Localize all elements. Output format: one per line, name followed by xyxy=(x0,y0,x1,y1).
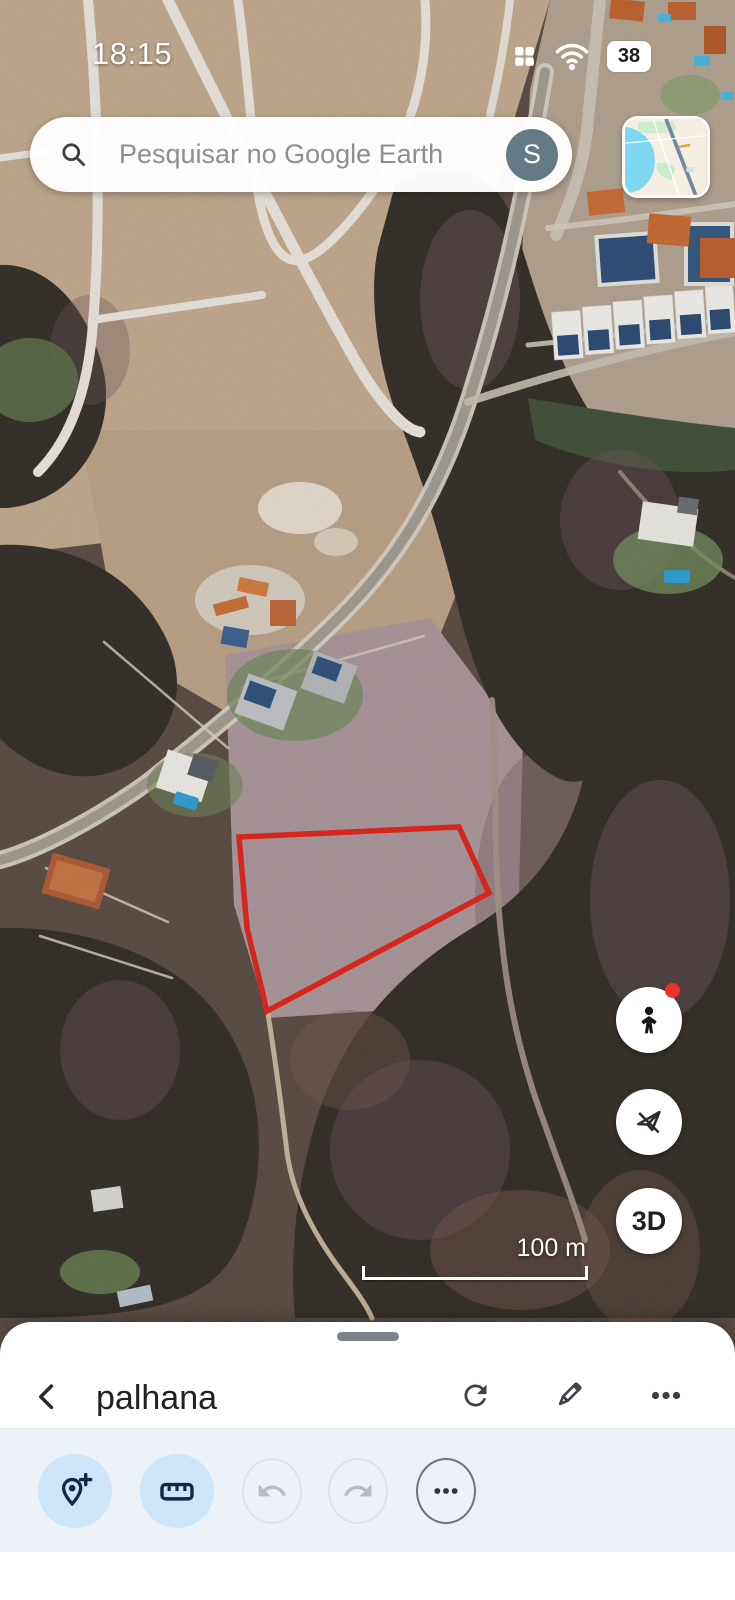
apps-grid-icon xyxy=(512,44,537,69)
undo-icon xyxy=(256,1475,288,1507)
redo-icon xyxy=(342,1475,374,1507)
account-avatar[interactable]: S xyxy=(506,129,558,181)
scale-ruler xyxy=(362,1266,588,1280)
sheet-header: palhana xyxy=(0,1370,735,1426)
overflow-dots-icon xyxy=(430,1475,462,1507)
bottom-sheet: palhana xyxy=(0,1322,735,1600)
overflow-button[interactable] xyxy=(416,1458,476,1524)
refresh-button[interactable] xyxy=(459,1379,492,1417)
measure-ruler-icon xyxy=(157,1471,197,1511)
measure-button[interactable] xyxy=(140,1454,214,1528)
flight-mode-button[interactable] xyxy=(616,1089,682,1155)
google-earth-app: 18:15 38 Pesquisar no Google Earth xyxy=(0,0,735,1600)
search-bar[interactable]: Pesquisar no Google Earth S xyxy=(30,117,572,192)
notification-dot xyxy=(665,983,680,998)
add-placemark-button[interactable] xyxy=(38,1454,112,1528)
undo-button[interactable] xyxy=(242,1458,302,1524)
pegman-icon xyxy=(633,1004,665,1036)
battery-indicator: 38 xyxy=(607,41,651,72)
clock: 18:15 xyxy=(92,36,172,72)
battery-percent: 38 xyxy=(618,45,640,68)
drag-handle[interactable] xyxy=(337,1332,399,1341)
minimap-preview-icon xyxy=(625,119,707,195)
more-dots-icon xyxy=(648,1378,684,1414)
wifi-icon xyxy=(553,40,591,72)
add-placemark-icon xyxy=(55,1471,95,1511)
flight-disabled-icon xyxy=(633,1106,665,1138)
search-icon xyxy=(60,141,87,168)
minimap-toggle[interactable] xyxy=(622,116,710,198)
scale-label: 100 m xyxy=(362,1234,588,1263)
scale-bar: 100 m xyxy=(362,1234,588,1280)
place-title: palhana xyxy=(96,1379,217,1418)
more-button[interactable] xyxy=(648,1378,684,1419)
view-3d-button[interactable]: 3D xyxy=(616,1188,682,1254)
redo-button[interactable] xyxy=(328,1458,388,1524)
chevron-left-icon xyxy=(32,1381,62,1411)
edit-button[interactable] xyxy=(552,1379,585,1417)
back-button[interactable] xyxy=(32,1381,62,1416)
refresh-icon xyxy=(459,1379,492,1412)
search-placeholder: Pesquisar no Google Earth xyxy=(119,139,506,170)
avatar-letter: S xyxy=(523,139,541,170)
action-toolbar xyxy=(0,1428,735,1552)
view-3d-label: 3D xyxy=(632,1206,667,1237)
edit-pencil-icon xyxy=(552,1379,585,1412)
